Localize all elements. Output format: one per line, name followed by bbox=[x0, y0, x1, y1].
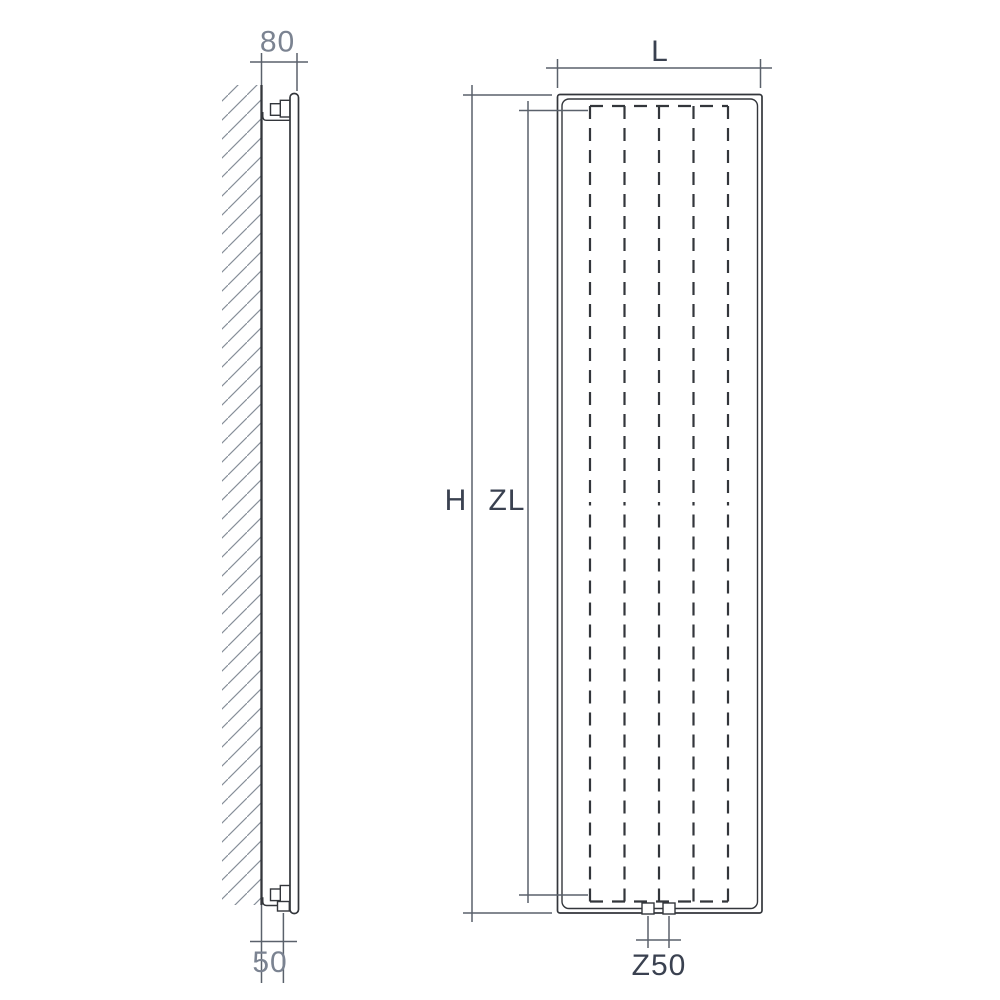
drawing-svg: 80 50 bbox=[0, 0, 1000, 1000]
connection-port-left bbox=[642, 903, 654, 914]
radiator-technical-drawing: 80 50 bbox=[0, 0, 1000, 1000]
top-wall-bracket bbox=[263, 100, 290, 120]
bottom-bracket-step bbox=[271, 889, 281, 901]
connection-dimension-label: Z50 bbox=[632, 949, 687, 982]
height-dimension-label: H bbox=[445, 484, 468, 517]
depth-dimension-label: 80 bbox=[260, 26, 295, 59]
wall-hatching bbox=[222, 85, 262, 905]
width-dimension-label: L bbox=[651, 35, 669, 68]
front-view: L H ZL Z50 bbox=[445, 35, 772, 982]
dimension-wall-clearance: 50 bbox=[250, 905, 297, 983]
side-view: 80 50 bbox=[222, 26, 308, 984]
dimension-depth: 80 bbox=[250, 26, 308, 92]
top-bracket-body bbox=[280, 100, 290, 117]
dimension-width: L bbox=[546, 35, 772, 88]
clearance-dimension-label: 50 bbox=[252, 946, 287, 979]
connection-port-right bbox=[663, 903, 675, 914]
dimension-connection-spacing: Z50 bbox=[632, 916, 687, 982]
radiator-panel-side bbox=[290, 94, 299, 914]
top-bracket-step bbox=[271, 104, 281, 116]
bottom-connection-foot bbox=[278, 902, 290, 912]
fin-height-dimension-label: ZL bbox=[488, 484, 525, 517]
bottom-bracket-body bbox=[280, 886, 290, 903]
